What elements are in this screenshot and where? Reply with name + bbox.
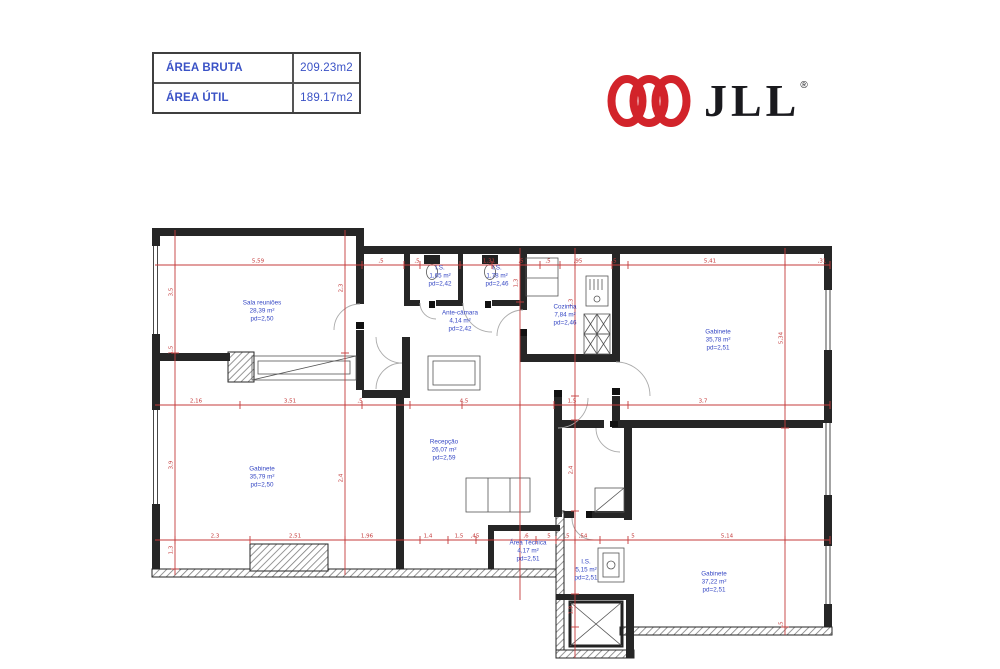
dimension-label: 5 xyxy=(547,534,551,540)
dimension-label: 1,3 xyxy=(169,545,175,554)
dimension-label: 1,3 xyxy=(569,298,575,307)
dimension-label: 1,4 xyxy=(424,534,433,540)
dimension-label: ,5 xyxy=(518,259,524,265)
dimension-label: ,54 xyxy=(579,534,588,540)
dimension-label: 2,4 xyxy=(569,465,575,474)
dimension-label: 3,9 xyxy=(169,460,175,469)
dimension-label: 2,51 xyxy=(289,534,301,540)
dimension-label: ,6 xyxy=(523,534,529,540)
dimension-label: 1,31 xyxy=(483,259,495,265)
dimension-label: 1,5 xyxy=(568,399,577,405)
dimension-label: ,5 xyxy=(378,259,384,265)
dimension-label: ,5 xyxy=(545,259,551,265)
floorplan-page: ÁREA BRUTA 209.23m2 ÁREA ÚTIL 189.17m2 J… xyxy=(0,0,1000,669)
dimension-label: 5,34 xyxy=(779,331,785,344)
dimension-label: ,5 xyxy=(564,534,570,540)
dimension-label: ,5 xyxy=(611,259,617,265)
dimension-label: 2,4 xyxy=(339,473,345,482)
dimension-label: ,5 xyxy=(779,621,785,627)
dimension-label: 2,3 xyxy=(339,283,345,292)
dimension-label: 1,3 xyxy=(514,278,520,287)
dimension-label: 2,3 xyxy=(211,534,220,540)
dimension-label: 3,51 xyxy=(284,399,296,405)
dimension-label: 3,7 xyxy=(699,399,708,405)
dimension-label: 5,41 xyxy=(704,259,716,265)
dimension-label: 2,16 xyxy=(190,399,203,405)
dimension-label: 1,9 xyxy=(569,605,575,614)
dimension-lines-layer: 5,59,5,51,31,5,5,95,55,41,312,163,51,54,… xyxy=(155,230,830,658)
walls-layer xyxy=(152,228,832,658)
dimension-label: 4,5 xyxy=(460,399,469,405)
dimension-label: 1,96 xyxy=(361,534,374,540)
dimension-label: ,31 xyxy=(818,259,827,265)
dimension-label: 5 xyxy=(631,534,635,540)
fixtures-layer xyxy=(252,255,624,646)
dimension-label: ,45 xyxy=(471,534,480,540)
dimension-label: ,5 xyxy=(357,399,363,405)
floorplan-drawing: 5,59,5,51,31,5,5,95,55,41,312,163,51,54,… xyxy=(0,0,1000,669)
dimension-label: 5,14 xyxy=(721,534,734,540)
dimension-label: 1,5 xyxy=(169,345,175,354)
dimension-label: 5,59 xyxy=(252,259,265,265)
dimension-label: 3,5 xyxy=(169,287,175,296)
dimension-label: 1,5 xyxy=(455,534,464,540)
dimension-label: ,5 xyxy=(414,259,420,265)
